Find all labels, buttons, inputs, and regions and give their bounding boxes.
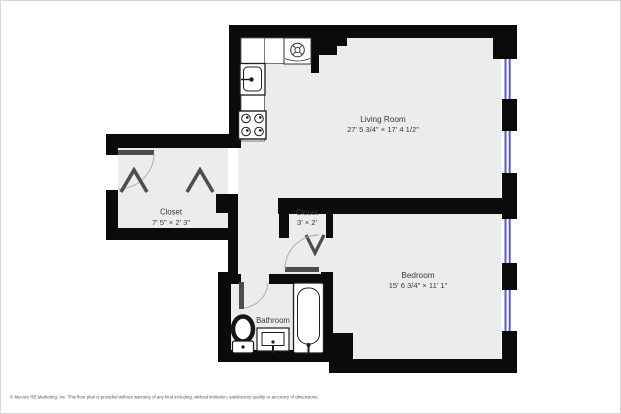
floor-plan: Living Room 27' 5 3/4" × 17' 4 1/2" Bedr… [0, 0, 621, 414]
stove [239, 111, 267, 139]
small-closet-label: Closet [296, 208, 319, 217]
wall-lr-east-pier [502, 99, 517, 131]
living-room-label: Living Room [360, 115, 406, 124]
wall-step-2 [311, 46, 337, 55]
closet-label: Closet [160, 208, 183, 217]
bedroom-window-2 [502, 290, 517, 331]
wall-bathroom-west [218, 272, 231, 356]
wall-small-closet-west [279, 198, 289, 238]
wall-bedroom-west-stub [321, 272, 333, 284]
wall-br-east-pier [502, 263, 517, 290]
closet-dimensions: 7' 5" × 2' 3" [152, 218, 190, 227]
toilet [233, 317, 254, 354]
floor-plan-drawing: Living Room 27' 5 3/4" × 17' 4 1/2" Bedr… [1, 1, 621, 414]
wall-entry-west-upper [106, 134, 118, 155]
hallway-floor [238, 141, 284, 284]
wall-lr-ne-corner [493, 38, 517, 59]
kitchen-sink [240, 64, 265, 96]
bedroom-dimensions: 15' 6 3/4" × 11' 1" [389, 281, 448, 290]
wall-step-3 [311, 55, 319, 73]
small-closet-dimensions: 3' × 2' [297, 218, 318, 227]
bedroom-label: Bedroom [401, 271, 434, 280]
wall-top [229, 25, 517, 38]
wall-bathroom-east [323, 284, 333, 357]
bathtub [294, 283, 324, 354]
living-room-dimensions: 27' 5 3/4" × 17' 4 1/2" [347, 125, 419, 134]
washer-dryer [284, 38, 311, 64]
wall-closet-south [106, 228, 238, 240]
bathroom-label: Bathroom [256, 316, 290, 325]
living-room-window-2 [502, 131, 517, 173]
wall-bedroom-south [329, 359, 517, 373]
wall-small-closet-east [326, 198, 333, 238]
wall-closet-north [109, 134, 241, 148]
copyright-disclaimer: © Mecure RE Marketing, Inc. This floor p… [10, 395, 319, 400]
bedroom-window-1 [502, 219, 517, 263]
wall-closet-east-jamb [216, 194, 238, 213]
bathroom-sink [257, 328, 289, 353]
wall-br-east-stub [502, 214, 517, 219]
living-room-window-1 [502, 59, 517, 99]
wall-step-1 [311, 38, 347, 46]
